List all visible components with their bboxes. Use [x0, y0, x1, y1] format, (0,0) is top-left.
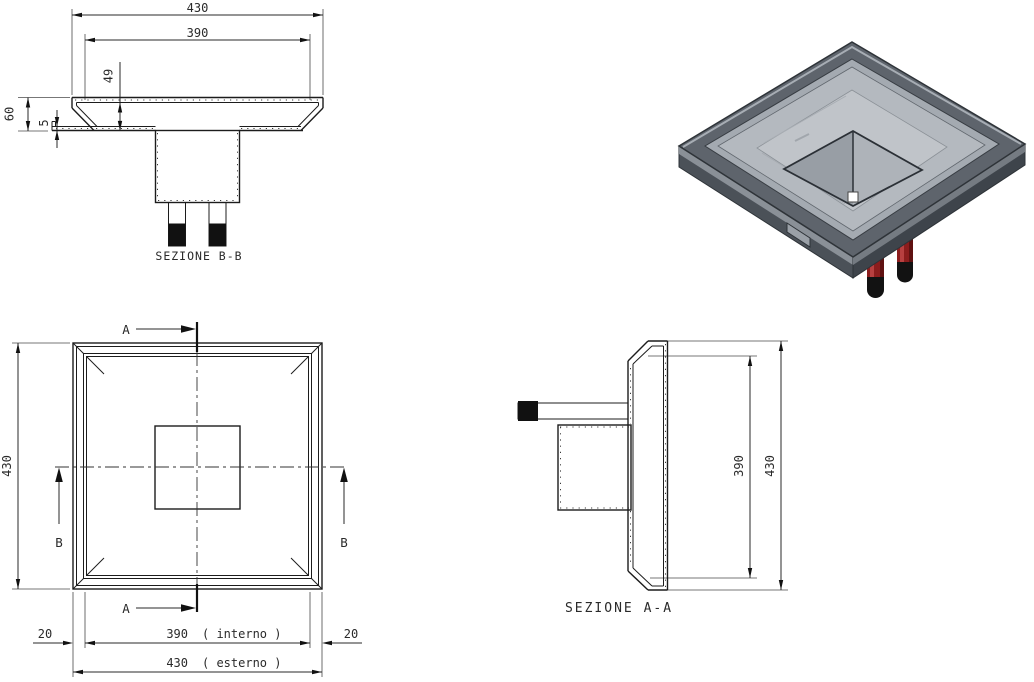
section-bb-view: 430 390 49 60 5 SEZIONE B-B	[3, 1, 324, 263]
iso-pipe-front-cap	[867, 277, 884, 298]
dim-plan-margin-left: 20	[38, 627, 52, 641]
dim-plan-outer-suffix: ( esterno )	[202, 656, 281, 670]
dim-plan-outer-value: 430	[166, 656, 188, 670]
dim-plan-inner-value: 390	[166, 627, 188, 641]
plan-outer-square	[73, 343, 322, 589]
spout-box-section-aa	[558, 425, 631, 510]
pipe-right-section-bb	[209, 203, 226, 247]
section-mark-a-bottom: A	[122, 601, 130, 616]
drawing-canvas: 430 390 49 60 5 SEZIONE B-B A	[0, 0, 1034, 682]
section-mark-a-top: A	[122, 322, 130, 337]
dim-bb-outer-width: 430	[187, 1, 209, 15]
spout-box-section-bb	[156, 131, 240, 203]
plan-center-square	[155, 426, 240, 509]
dim-plan-inner-suffix: ( interno )	[202, 627, 281, 641]
section-aa-label: SEZIONE A-A	[565, 601, 673, 616]
section-arrow-b-right: B	[340, 468, 348, 551]
section-arrow-a-top: A	[122, 322, 196, 337]
dim-bb-height: 60	[3, 107, 17, 121]
dim-bb-depth: 49	[102, 69, 116, 83]
section-bb-label: SEZIONE B-B	[155, 249, 242, 263]
plan-bevel-square	[84, 354, 312, 579]
dim-plan-margin-right: 20	[344, 627, 358, 641]
technical-drawing-sheet: 430 390 49 60 5 SEZIONE B-B A	[0, 0, 1034, 682]
plan-view: A A B B 430	[0, 322, 362, 677]
dim-bb-flange: 5	[37, 119, 51, 126]
pipe-section-aa	[518, 401, 628, 421]
iso-drain-hole	[848, 192, 858, 202]
dim-bb-inner-width: 390	[187, 26, 209, 40]
dim-aa-inner-height: 390	[732, 455, 746, 477]
section-mark-b-right: B	[340, 535, 348, 550]
pipe-left-section-bb	[169, 203, 186, 247]
dim-plan-side: 430	[0, 455, 14, 477]
iso-3d-view	[679, 42, 1025, 298]
section-aa-view: 390 430 SEZIONE A-A	[518, 341, 788, 616]
flange-lip	[52, 122, 94, 131]
dim-aa-outer-height: 430	[763, 455, 777, 477]
section-arrow-b-left: B	[55, 468, 63, 551]
iso-pipe-back-cap	[897, 262, 913, 283]
section-arrow-a-bottom: A	[122, 601, 196, 616]
section-mark-b-left: B	[55, 535, 63, 550]
